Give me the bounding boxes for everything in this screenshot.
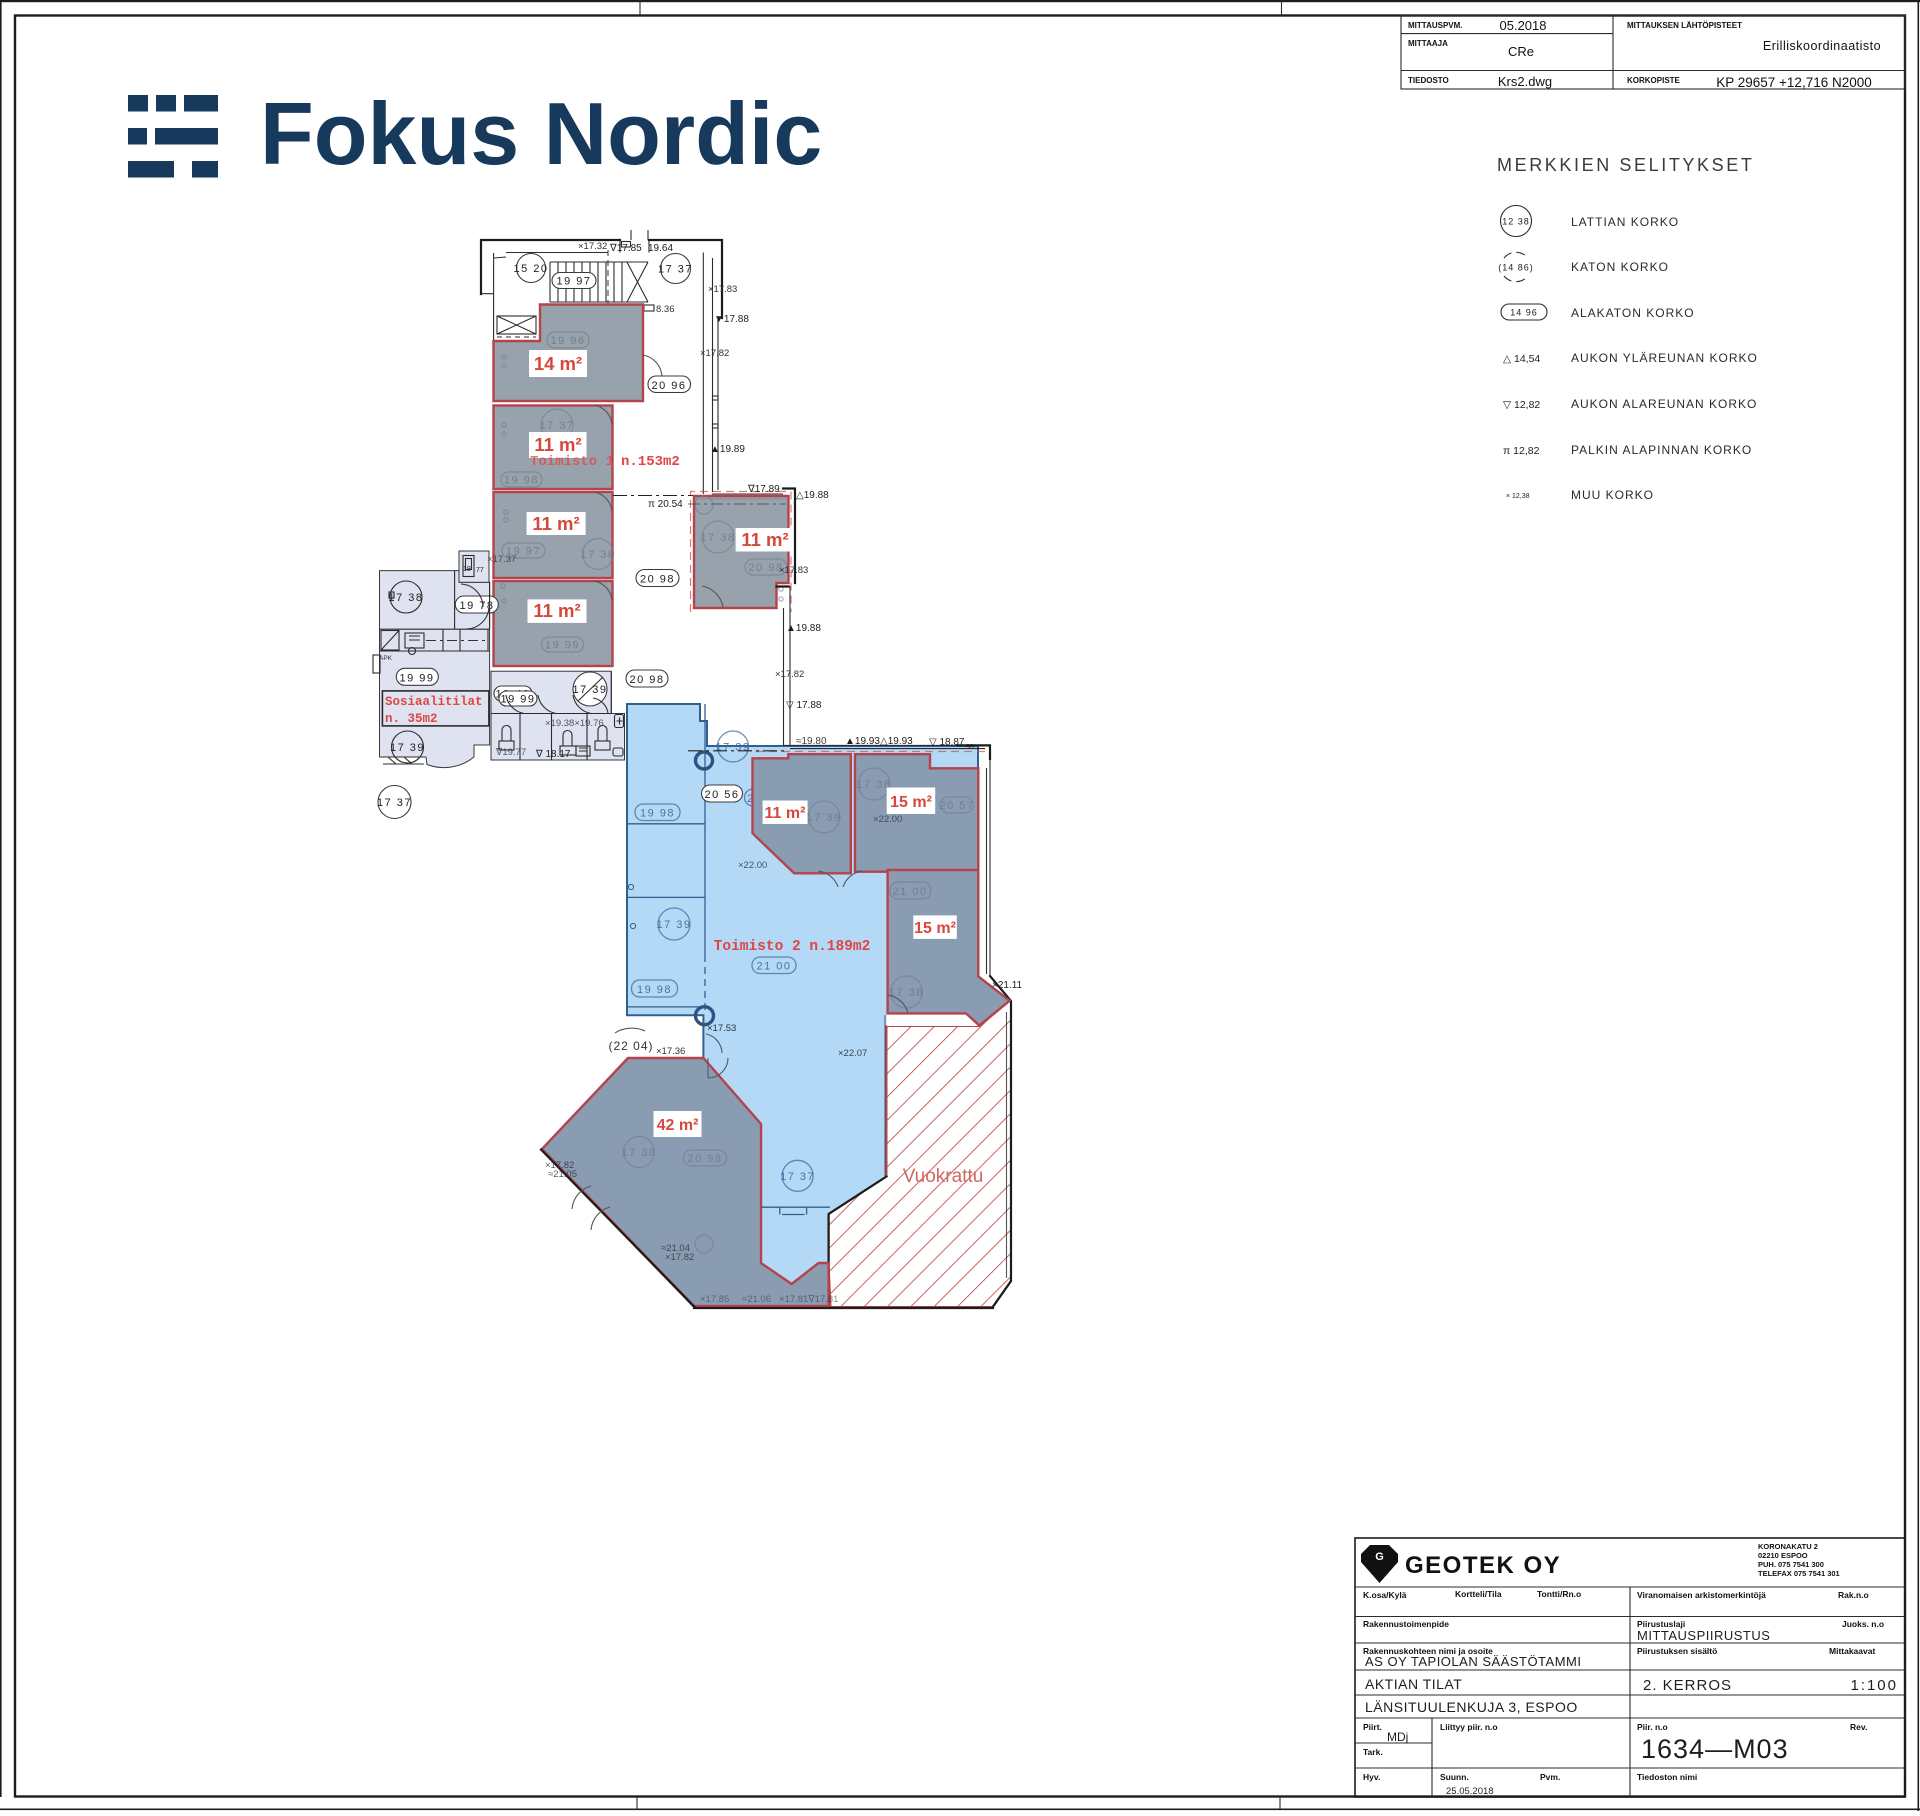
- svg-text:Tark.: Tark.: [1363, 1747, 1383, 1757]
- svg-text:17 38: 17 38: [580, 549, 615, 561]
- svg-text:Tontti/Rn.o: Tontti/Rn.o: [1537, 1589, 1581, 1599]
- svg-text:▽ 17.88: ▽ 17.88: [786, 700, 822, 711]
- svg-text:11 m²: 11 m²: [532, 513, 579, 534]
- svg-text:19 99: 19 99: [399, 672, 434, 684]
- svg-text:02210 ESPOO: 02210 ESPOO: [1758, 1551, 1808, 1560]
- svg-text:Rakennustoimenpide: Rakennustoimenpide: [1363, 1619, 1449, 1629]
- svg-text:×19.38×19.76: ×19.38×19.76: [545, 718, 604, 729]
- svg-text:MUU KORKO: MUU KORKO: [1571, 488, 1654, 502]
- svg-text:×17.83: ×17.83: [708, 284, 737, 295]
- svg-text:G: G: [1375, 1551, 1384, 1563]
- svg-text:21 00: 21 00: [756, 961, 791, 973]
- svg-text:17 38: 17 38: [856, 779, 891, 791]
- svg-text:11 m²: 11 m²: [533, 600, 580, 621]
- svg-text:×22.07: ×22.07: [838, 1048, 867, 1059]
- svg-text:≈21.06: ≈21.06: [742, 1294, 771, 1305]
- svg-text:19 99: 19 99: [545, 640, 580, 652]
- svg-text:17 39: 17 39: [806, 812, 841, 824]
- svg-text:77: 77: [476, 567, 484, 574]
- svg-text:×21.11: ×21.11: [992, 980, 1023, 991]
- svg-text:TIEDOSTO: TIEDOSTO: [1408, 76, 1449, 85]
- svg-text:×17.82: ×17.82: [775, 669, 804, 680]
- svg-text:11 m²: 11 m²: [534, 434, 581, 455]
- svg-text:MITTAUKSEN LÄHTÖPISTEET: MITTAUKSEN LÄHTÖPISTEET: [1627, 21, 1742, 30]
- svg-text:(14 86): (14 86): [1498, 263, 1534, 273]
- svg-text:×22.00: ×22.00: [738, 860, 767, 871]
- svg-text:×22.00: ×22.00: [873, 814, 902, 825]
- svg-text:Mittakaavat: Mittakaavat: [1829, 1646, 1875, 1656]
- svg-text:21 00: 21 00: [892, 886, 927, 898]
- svg-text:KORKOPISTE: KORKOPISTE: [1627, 76, 1681, 85]
- svg-text:17 39: 17 39: [390, 742, 425, 754]
- svg-text:20 57: 20 57: [939, 800, 974, 812]
- svg-text:17 37: 17 37: [780, 1171, 815, 1183]
- svg-text:×17.36: ×17.36: [656, 1046, 685, 1057]
- svg-text:▽ 12,82: ▽ 12,82: [1503, 399, 1540, 411]
- svg-text:17 37: 17 37: [539, 420, 574, 432]
- svg-text:19 98: 19 98: [637, 984, 672, 996]
- svg-text:19.64: 19.64: [648, 243, 673, 254]
- svg-text:19: 19: [463, 566, 471, 573]
- svg-text:▼17.88: ▼17.88: [714, 314, 749, 325]
- svg-text:20 56: 20 56: [704, 789, 739, 801]
- svg-text:MITTAUSPIIRUSTUS: MITTAUSPIIRUSTUS: [1637, 1628, 1770, 1643]
- svg-text:8.36: 8.36: [656, 304, 675, 315]
- svg-text:20 98: 20 98: [629, 674, 664, 686]
- svg-text:Hyv.: Hyv.: [1363, 1772, 1380, 1782]
- svg-text:TELEFAX 075 7541 301: TELEFAX 075 7541 301: [1758, 1569, 1840, 1578]
- svg-text:Piirustuksen sisältö: Piirustuksen sisältö: [1637, 1646, 1717, 1656]
- svg-text:×17.81∇17.81: ×17.81∇17.81: [779, 1294, 838, 1305]
- svg-text:× 12,38: × 12,38: [1506, 493, 1530, 500]
- svg-text:Rev.: Rev.: [1850, 1722, 1867, 1732]
- svg-text:19 98: 19 98: [640, 808, 675, 820]
- svg-text:≈21.05: ≈21.05: [548, 1169, 577, 1180]
- svg-text:AKTIAN TILAT: AKTIAN TILAT: [1365, 1676, 1462, 1692]
- svg-text:Krs2.dwg: Krs2.dwg: [1498, 74, 1552, 89]
- svg-text:17 39: 17 39: [656, 919, 691, 931]
- svg-text:ALAKATON KORKO: ALAKATON KORKO: [1571, 306, 1695, 320]
- svg-text:Kortteli/Tila: Kortteli/Tila: [1455, 1589, 1502, 1599]
- svg-text:12 38: 12 38: [1502, 217, 1530, 227]
- svg-text:14 96: 14 96: [1510, 308, 1538, 318]
- svg-text:19 97: 19 97: [556, 276, 591, 288]
- svg-text:17 38: 17 38: [700, 532, 735, 544]
- svg-text:Piir. n.o: Piir. n.o: [1637, 1722, 1668, 1732]
- svg-text:17 39: 17 39: [715, 742, 750, 754]
- svg-text:×17.85: ×17.85: [700, 1294, 729, 1305]
- svg-text:Viranomaisen arkistomerkintöjä: Viranomaisen arkistomerkintöjä: [1637, 1590, 1766, 1600]
- svg-text:15 20: 15 20: [513, 263, 548, 275]
- svg-text:AUKON YLÄREUNAN KORKO: AUKON YLÄREUNAN KORKO: [1571, 351, 1758, 365]
- svg-text:PUH. 075 7541 300: PUH. 075 7541 300: [1758, 1560, 1824, 1569]
- svg-text:×17.83: ×17.83: [779, 565, 808, 576]
- svg-text:AS OY TAPIOLAN SÄÄSTÖTAMMI: AS OY TAPIOLAN SÄÄSTÖTAMMI: [1365, 1654, 1581, 1669]
- svg-text:APK: APK: [379, 655, 393, 662]
- svg-text:×17.82: ×17.82: [700, 348, 729, 359]
- svg-text:∇19.77: ∇19.77: [495, 747, 526, 758]
- svg-text:×17.37: ×17.37: [487, 554, 516, 565]
- svg-text:Juoks. n.o: Juoks. n.o: [1842, 1619, 1884, 1629]
- svg-text:×17.82: ×17.82: [665, 1252, 694, 1263]
- svg-text:20 96: 20 96: [651, 380, 686, 392]
- svg-text:KP 29657 +12,716 N2000: KP 29657 +12,716 N2000: [1716, 75, 1872, 90]
- svg-text:90: 90: [966, 744, 974, 751]
- svg-text:GEOTEK OY: GEOTEK OY: [1405, 1552, 1561, 1579]
- svg-text:Toimisto 1: Toimisto 1: [530, 454, 614, 470]
- svg-text:▲19.88: ▲19.88: [786, 623, 821, 634]
- svg-text:14 m²: 14 m²: [534, 353, 582, 374]
- svg-text:Tiedoston nimi: Tiedoston nimi: [1637, 1772, 1697, 1782]
- svg-text:CRe: CRe: [1508, 44, 1534, 59]
- svg-text:∇17.89: ∇17.89: [747, 484, 780, 495]
- svg-text:20 98: 20 98: [640, 574, 675, 586]
- svg-text:▲19.93: ▲19.93: [845, 736, 880, 747]
- svg-text:42 m²: 42 m²: [657, 1117, 699, 1134]
- svg-text:Fokus Nordic: Fokus Nordic: [260, 84, 822, 183]
- svg-text:π 20.54: π 20.54: [648, 499, 683, 510]
- svg-text:05.2018: 05.2018: [1500, 18, 1547, 33]
- svg-text:Sosiaalitilat: Sosiaalitilat: [385, 695, 483, 709]
- svg-text:MERKKIEN SELITYKSET: MERKKIEN SELITYKSET: [1497, 155, 1754, 175]
- svg-text:△ 14,54: △ 14,54: [1503, 353, 1540, 365]
- svg-text:Piirt.: Piirt.: [1363, 1722, 1382, 1732]
- svg-text:2. KERROS: 2. KERROS: [1643, 1677, 1732, 1694]
- svg-text:(22 04): (22 04): [608, 1039, 653, 1053]
- svg-text:▲19.89: ▲19.89: [710, 444, 745, 455]
- svg-text:△19.88: △19.88: [796, 490, 829, 501]
- svg-text:MITTAAJA: MITTAAJA: [1408, 39, 1448, 48]
- svg-text:≈19.80: ≈19.80: [796, 736, 827, 747]
- svg-text:K.osa/Kylä: K.osa/Kylä: [1363, 1590, 1407, 1600]
- svg-text:1:100: 1:100: [1850, 1677, 1898, 1694]
- svg-text:Suunn.: Suunn.: [1440, 1772, 1469, 1782]
- svg-text:MDj: MDj: [1387, 1730, 1408, 1744]
- svg-text:AUKON ALAREUNAN KORKO: AUKON ALAREUNAN KORKO: [1571, 397, 1757, 411]
- svg-text:Pvm.: Pvm.: [1540, 1772, 1560, 1782]
- svg-text:Erilliskoordinaatisto: Erilliskoordinaatisto: [1763, 39, 1881, 53]
- svg-text:∇ 18.17: ∇ 18.17: [535, 749, 571, 760]
- svg-text:×17.53: ×17.53: [707, 1023, 736, 1034]
- svg-text:×17.32: ×17.32: [578, 241, 607, 252]
- svg-text:11 m²: 11 m²: [741, 529, 788, 550]
- svg-text:Rak.n.o: Rak.n.o: [1838, 1590, 1869, 1600]
- svg-text:19 96: 19 96: [550, 335, 585, 347]
- svg-text:15 m²: 15 m²: [890, 794, 932, 811]
- svg-text:∇17.85: ∇17.85: [609, 243, 642, 254]
- svg-text:17 37: 17 37: [658, 264, 693, 276]
- svg-text:KORONAKATU 2: KORONAKATU 2: [1758, 1542, 1818, 1551]
- svg-text:LATTIAN KORKO: LATTIAN KORKO: [1571, 215, 1679, 229]
- svg-text:Vuokrattu: Vuokrattu: [903, 1166, 984, 1187]
- svg-text:25.05.2018: 25.05.2018: [1446, 1786, 1494, 1797]
- svg-text:17 38: 17 38: [621, 1147, 656, 1159]
- svg-text:11 m²: 11 m²: [765, 805, 806, 822]
- svg-text:1634—M03: 1634—M03: [1641, 1734, 1789, 1764]
- svg-text:▽ 18.87: ▽ 18.87: [929, 737, 965, 748]
- svg-text:15 m²: 15 m²: [914, 920, 956, 937]
- svg-text:Toimisto 2 n.189m2: Toimisto 2 n.189m2: [714, 939, 871, 955]
- svg-text:n. 35m2: n. 35m2: [385, 712, 438, 726]
- svg-text:n.153m2: n.153m2: [621, 454, 680, 470]
- svg-text:MITTAUSPVM.: MITTAUSPVM.: [1408, 21, 1463, 30]
- svg-text:20 98: 20 98: [687, 1153, 722, 1165]
- svg-text:17 37: 17 37: [377, 797, 412, 809]
- svg-text:LÄNSITUULENKUJA 3, ESPOO: LÄNSITUULENKUJA 3, ESPOO: [1365, 1699, 1578, 1715]
- svg-text:PALKIN ALAPINNAN KORKO: PALKIN ALAPINNAN KORKO: [1571, 443, 1752, 457]
- svg-text:19 98: 19 98: [504, 475, 539, 487]
- svg-text:Liittyy piir. n.o: Liittyy piir. n.o: [1440, 1722, 1498, 1732]
- svg-text:△19.93: △19.93: [880, 736, 913, 747]
- svg-text:KATON KORKO: KATON KORKO: [1571, 260, 1669, 274]
- svg-text:π 12,82: π 12,82: [1503, 445, 1540, 457]
